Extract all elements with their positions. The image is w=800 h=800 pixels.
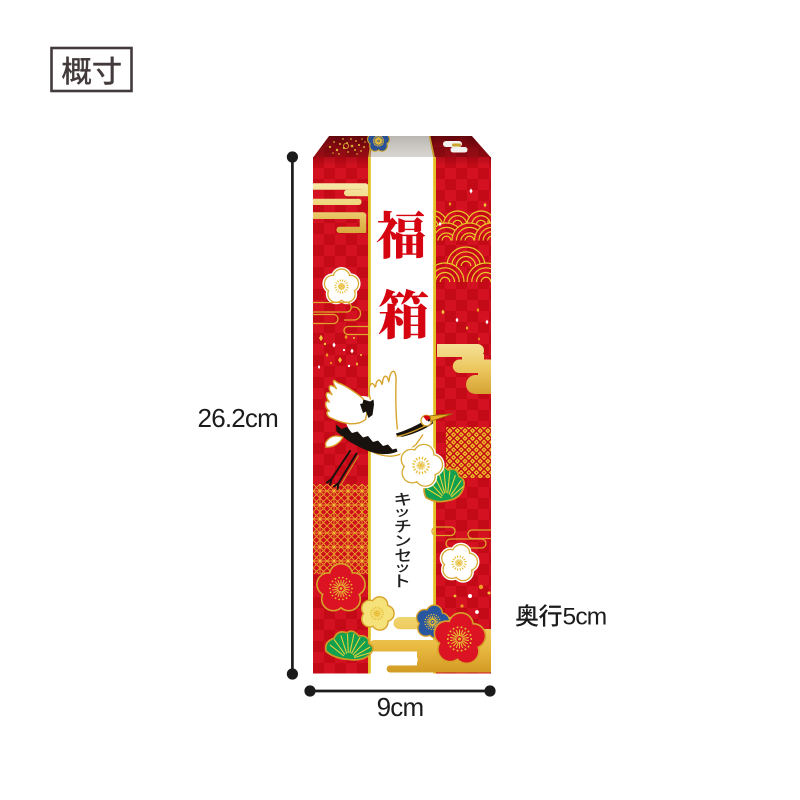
- svg-text:9cm: 9cm: [377, 692, 424, 722]
- svg-text:5cm: 5cm: [563, 604, 607, 631]
- svg-text:26.2cm: 26.2cm: [198, 403, 278, 433]
